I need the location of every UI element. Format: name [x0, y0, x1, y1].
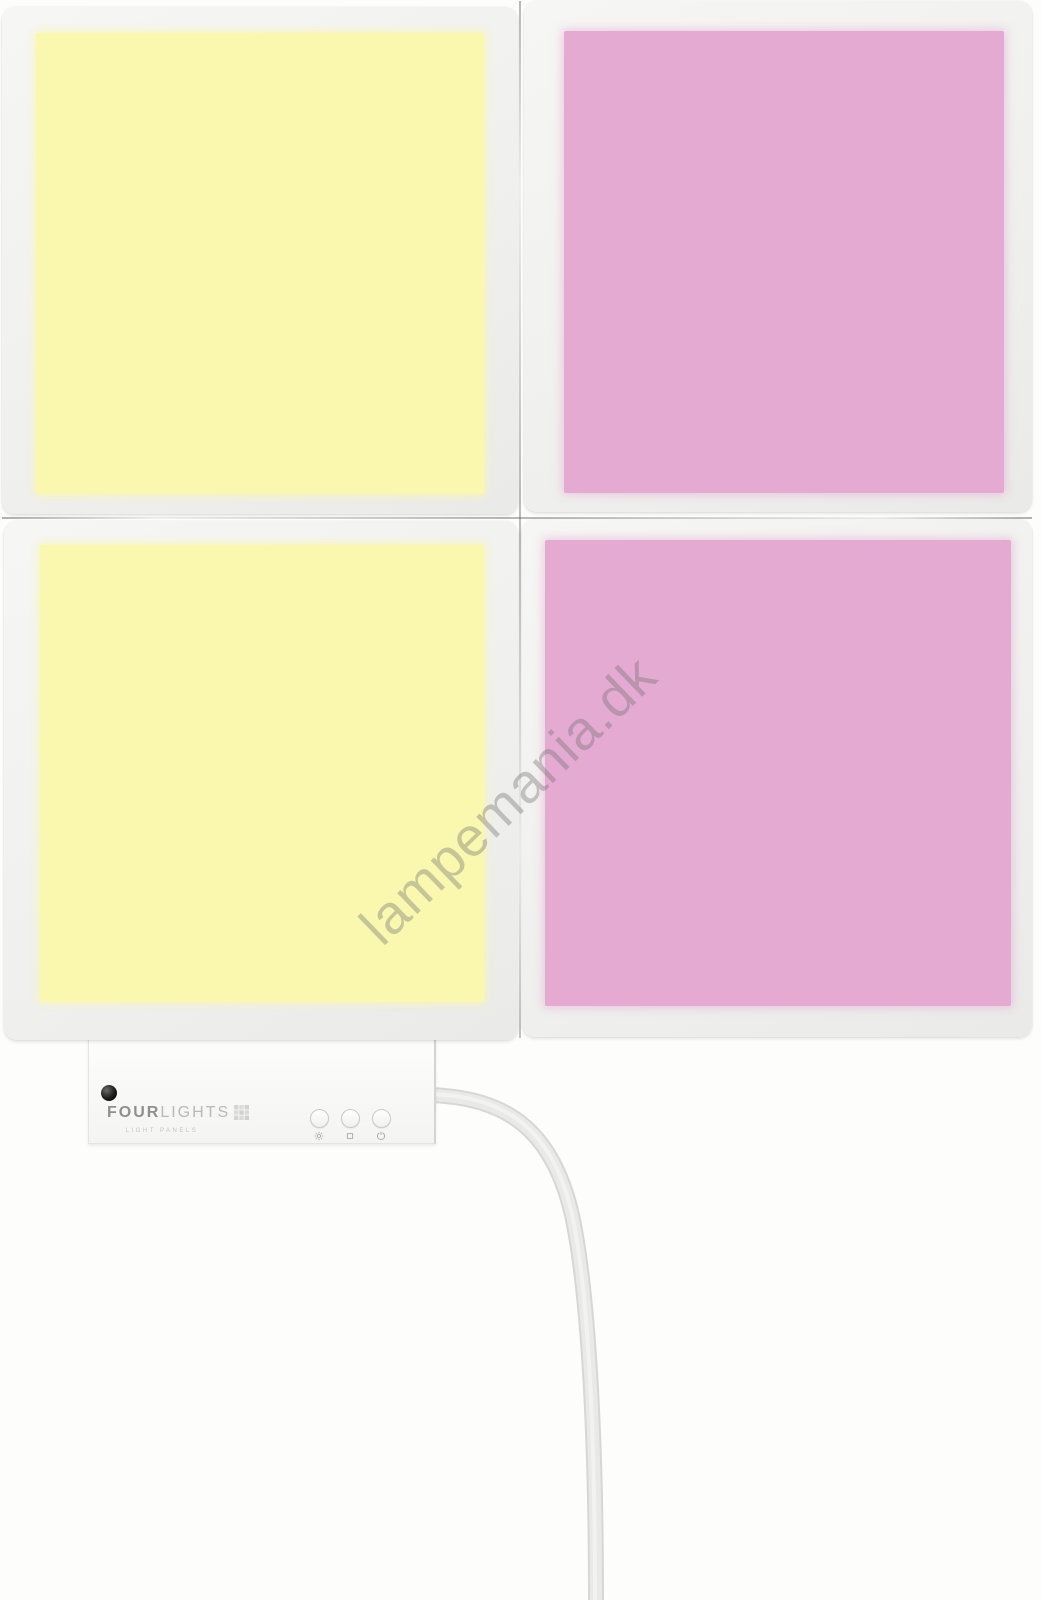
brand-logo-secondary: LIGHTS: [160, 1104, 230, 1121]
brightness-icon: [314, 1131, 324, 1141]
mode-button: [341, 1109, 358, 1128]
panel-seam-vertical: [519, 1, 521, 1038]
mode-square-icon: [345, 1131, 355, 1141]
brightness-button-cap: [310, 1109, 329, 1128]
controller-box: FOURLIGHTS LIGHT PANELS: [88, 1038, 436, 1144]
brand-tagline: LIGHT PANELS: [107, 1123, 217, 1139]
light-panel-bottom-left: [4, 521, 518, 1040]
brightness-button: [310, 1109, 327, 1128]
panel-glow-pink: [545, 540, 1011, 1006]
product-photo: FOURLIGHTS LIGHT PANELS: [0, 0, 1041, 1600]
power-button-cap: [372, 1109, 391, 1128]
mode-button-cap: [341, 1109, 360, 1128]
light-panel-top-left: [2, 7, 518, 514]
controller-buttons: [310, 1109, 389, 1128]
power-icon: [376, 1131, 386, 1141]
light-panel-top-right: [524, 1, 1032, 512]
brand-logo: FOURLIGHTS LIGHT PANELS: [107, 1105, 249, 1139]
panel-glow-pink: [564, 31, 1004, 493]
ir-sensor-dot: [101, 1085, 117, 1101]
panel-glow-yellow: [40, 545, 484, 1002]
brand-logo-primary: FOUR: [107, 1104, 160, 1121]
power-button: [372, 1109, 389, 1128]
panel-glow-yellow: [36, 33, 484, 494]
light-panel-bottom-right: [522, 519, 1032, 1037]
logo-grid-icon: [234, 1105, 249, 1120]
